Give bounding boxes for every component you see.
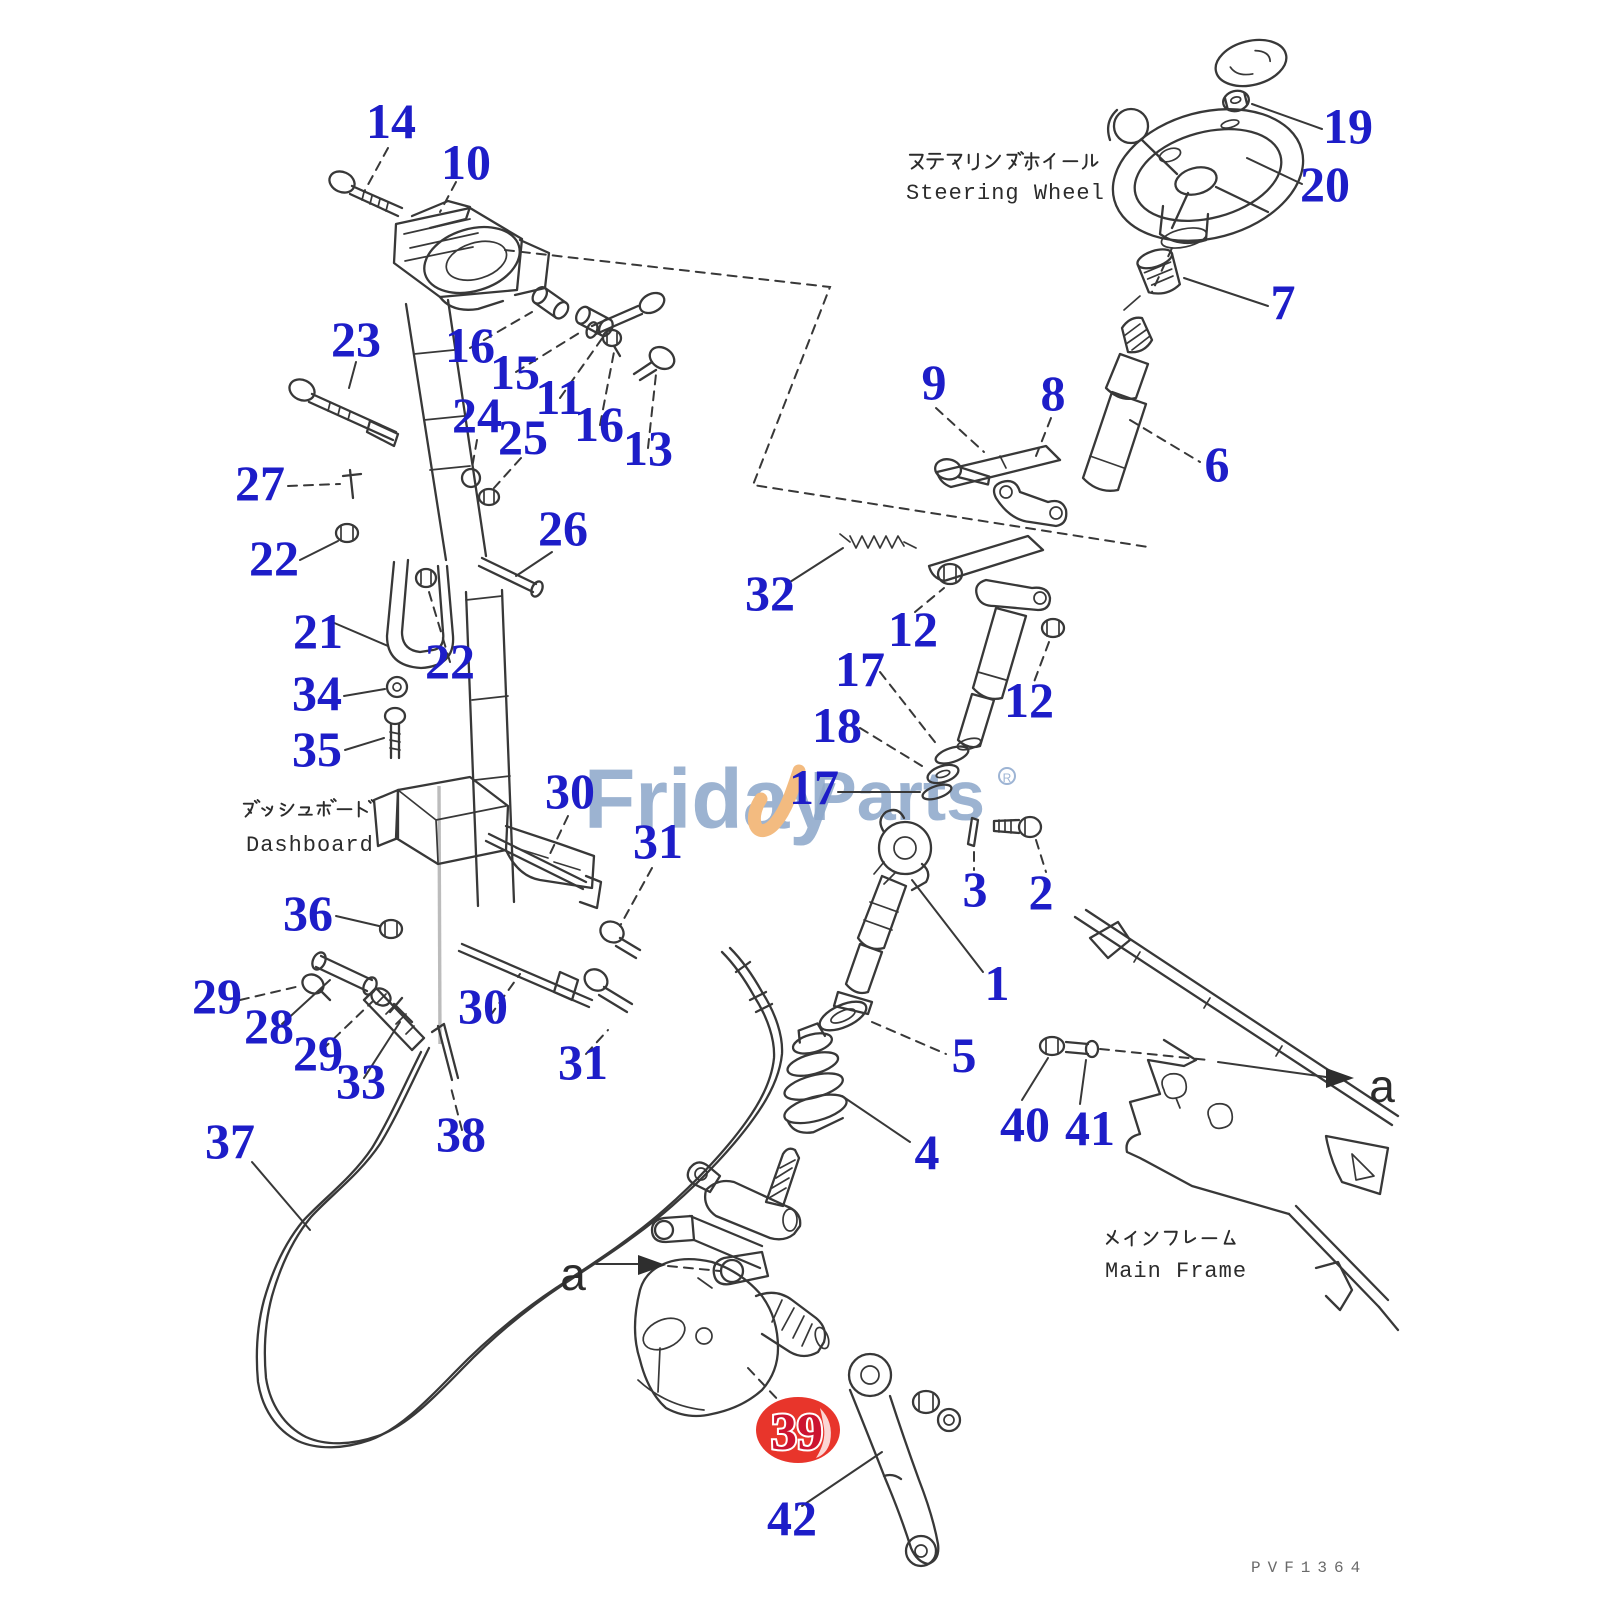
svg-text:Dashboard: Dashboard — [246, 833, 374, 858]
svg-text:28: 28 — [244, 998, 294, 1054]
svg-text:13: 13 — [623, 420, 673, 476]
svg-text:40: 40 — [1000, 1096, 1050, 1152]
svg-text:16: 16 — [445, 317, 495, 373]
svg-text:25: 25 — [498, 409, 548, 465]
svg-text:24: 24 — [452, 387, 502, 443]
svg-text:Steering Wheel: Steering Wheel — [906, 181, 1105, 206]
svg-text:39: 39 — [771, 1404, 823, 1461]
svg-text:37: 37 — [205, 1113, 255, 1169]
svg-text:26: 26 — [538, 500, 588, 556]
svg-text:32: 32 — [745, 565, 795, 621]
svg-text:27: 27 — [235, 455, 285, 511]
svg-text:17: 17 — [789, 759, 839, 815]
svg-text:30: 30 — [545, 763, 595, 819]
svg-text:14: 14 — [366, 93, 416, 149]
svg-text:7: 7 — [1271, 274, 1296, 330]
svg-text:4: 4 — [915, 1124, 940, 1180]
svg-text:42: 42 — [767, 1490, 817, 1546]
svg-text:5: 5 — [952, 1027, 977, 1083]
svg-text:6: 6 — [1205, 436, 1230, 492]
svg-text:20: 20 — [1300, 156, 1350, 212]
svg-text:22: 22 — [425, 633, 475, 689]
svg-text:33: 33 — [336, 1053, 386, 1109]
svg-text:31: 31 — [633, 813, 683, 869]
svg-text:8: 8 — [1041, 365, 1066, 421]
svg-text:1: 1 — [985, 955, 1010, 1011]
svg-text:18: 18 — [812, 697, 862, 753]
svg-text:17: 17 — [835, 641, 885, 697]
svg-text:21: 21 — [293, 603, 343, 659]
svg-text:12: 12 — [888, 601, 938, 657]
svg-text:2: 2 — [1029, 864, 1054, 920]
svg-text:41: 41 — [1065, 1100, 1115, 1156]
svg-text:36: 36 — [283, 885, 333, 941]
svg-text:35: 35 — [292, 721, 342, 777]
svg-text:16: 16 — [574, 396, 624, 452]
svg-text:22: 22 — [249, 530, 299, 586]
svg-text:31: 31 — [558, 1034, 608, 1090]
svg-text:23: 23 — [331, 311, 381, 367]
svg-text:PVF1364: PVF1364 — [1251, 1559, 1367, 1577]
svg-text:12: 12 — [1004, 672, 1054, 728]
svg-text:34: 34 — [292, 665, 342, 721]
svg-text:a: a — [1369, 1060, 1395, 1112]
svg-text:29: 29 — [192, 968, 242, 1024]
svg-text:10: 10 — [441, 134, 491, 190]
svg-text:R: R — [1003, 771, 1012, 785]
svg-text:38: 38 — [436, 1106, 486, 1162]
svg-text:19: 19 — [1323, 98, 1373, 154]
svg-text:Main Frame: Main Frame — [1105, 1259, 1247, 1284]
svg-text:9: 9 — [922, 354, 947, 410]
svg-text:30: 30 — [458, 978, 508, 1034]
svg-text:a: a — [560, 1248, 586, 1300]
